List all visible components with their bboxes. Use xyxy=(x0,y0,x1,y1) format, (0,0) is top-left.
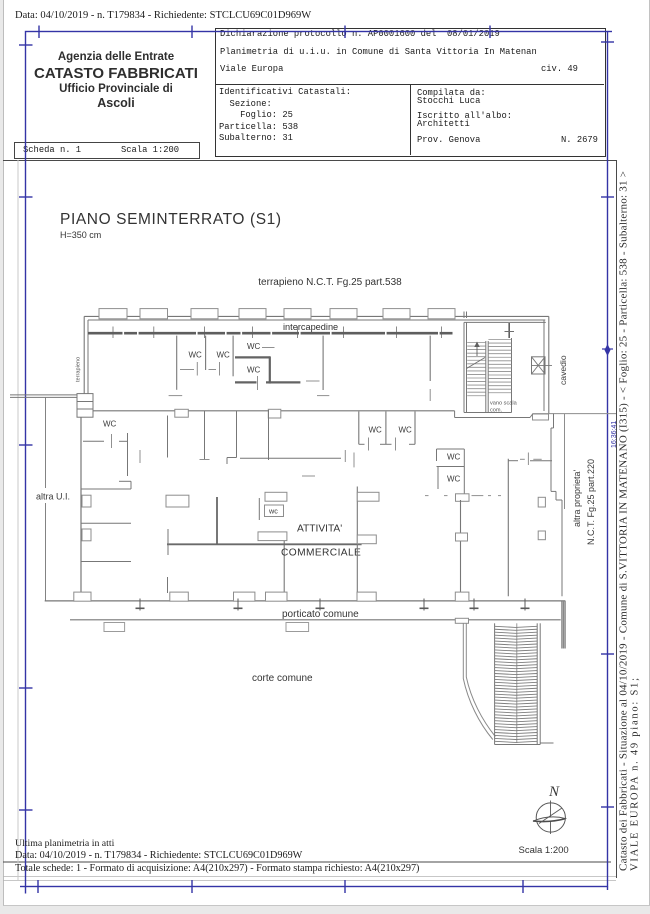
svg-text:WC: WC xyxy=(217,351,231,360)
svg-text:intercapedine: intercapedine xyxy=(283,322,338,332)
svg-text:com.: com. xyxy=(490,408,503,414)
svg-text:wc: wc xyxy=(268,507,278,516)
svg-text:vano scala: vano scala xyxy=(490,401,518,407)
svg-text:COMMERCIALE: COMMERCIALE xyxy=(281,548,361,559)
svg-text:WC: WC xyxy=(247,342,261,351)
svg-text:cavedio: cavedio xyxy=(558,355,568,385)
svg-text:ATTIVITA': ATTIVITA' xyxy=(297,524,342,535)
svg-text:porticato comune: porticato comune xyxy=(282,609,359,620)
svg-text:WC: WC xyxy=(369,426,383,435)
svg-text:WC: WC xyxy=(189,351,203,360)
svg-text:Scala 1:200: Scala 1:200 xyxy=(519,845,569,856)
svg-text:N.C.T. Fg.25 part.220: N.C.T. Fg.25 part.220 xyxy=(586,459,596,545)
svg-text:terrapieno N.C.T. Fg.25 part.5: terrapieno N.C.T. Fg.25 part.538 xyxy=(258,277,402,288)
svg-text:Catasto dei Fabbricati - Situa: Catasto dei Fabbricati - Situazione al 0… xyxy=(618,171,630,871)
svg-text:altra proprieta': altra proprieta' xyxy=(572,469,582,527)
svg-text:WC: WC xyxy=(247,365,261,374)
svg-text:altra U.I.: altra U.I. xyxy=(36,492,70,502)
svg-text:terrapieno: terrapieno xyxy=(76,357,82,382)
svg-text:corte comune: corte comune xyxy=(252,673,313,684)
svg-text:WC: WC xyxy=(447,453,461,462)
svg-text:WC: WC xyxy=(399,426,413,435)
svg-text:N: N xyxy=(548,784,560,800)
svg-text:WC: WC xyxy=(447,475,461,484)
svg-text:VIALE EUROPA n. 49 piano: S1;: VIALE EUROPA n. 49 piano: S1; xyxy=(630,678,641,871)
svg-text:WC: WC xyxy=(103,420,117,429)
